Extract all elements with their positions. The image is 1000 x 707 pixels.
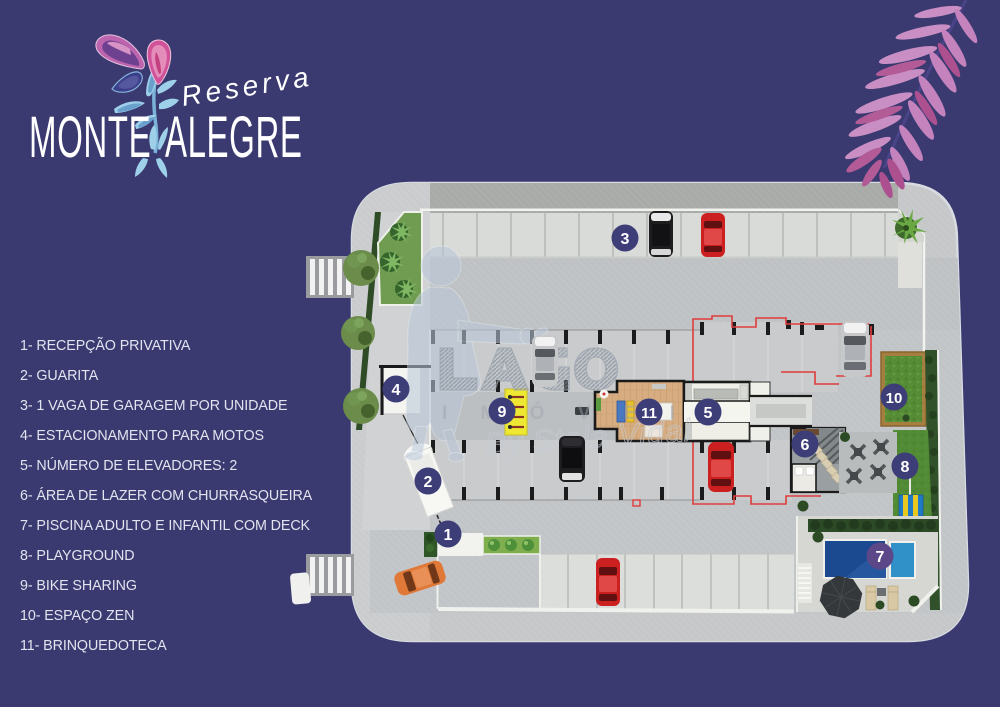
svg-text:10: 10 [886,390,903,407]
svg-text:3- 1 VAGA DE GARAGEM POR UNIDA: 3- 1 VAGA DE GARAGEM POR UNIDADE [20,398,287,414]
svg-text:1- RECEPÇÃO PRIVATIVA: 1- RECEPÇÃO PRIVATIVA [20,337,191,354]
svg-text:ALEGRE: ALEGRE [165,105,303,170]
svg-text:8: 8 [901,459,910,476]
svg-text:11: 11 [641,405,657,422]
svg-text:3: 3 [621,231,630,248]
svg-text:7: 7 [876,549,885,566]
svg-text:6- ÁREA DE LAZER COM CHURRASQU: 6- ÁREA DE LAZER COM CHURRASQUEIRA [20,487,313,504]
svg-text:6: 6 [801,437,810,454]
svg-text:9- BIKE SHARING: 9- BIKE SHARING [20,578,137,594]
svg-text:9: 9 [498,404,507,421]
svg-text:8- PLAYGROUND: 8- PLAYGROUND [20,548,134,564]
svg-text:4: 4 [392,382,401,399]
svg-text:2: 2 [424,474,433,491]
svg-text:2- GUARITA: 2- GUARITA [20,368,99,384]
svg-text:1: 1 [444,527,453,544]
svg-text:5: 5 [704,405,713,422]
svg-text:5- NÚMERO DE ELEVADORES: 2: 5- NÚMERO DE ELEVADORES: 2 [20,457,237,474]
svg-text:4- ESTACIONAMENTO PARA MOTOS: 4- ESTACIONAMENTO PARA MOTOS [20,428,264,444]
svg-text:MONTE: MONTE [29,105,151,170]
svg-text:11- BRINQUEDOTECA: 11- BRINQUEDOTECA [20,638,167,654]
svg-text:7- PISCINA ADULTO E INFANTIL C: 7- PISCINA ADULTO E INFANTIL COM DECK [20,518,311,534]
svg-text:10- ESPAÇO ZEN: 10- ESPAÇO ZEN [20,608,134,624]
